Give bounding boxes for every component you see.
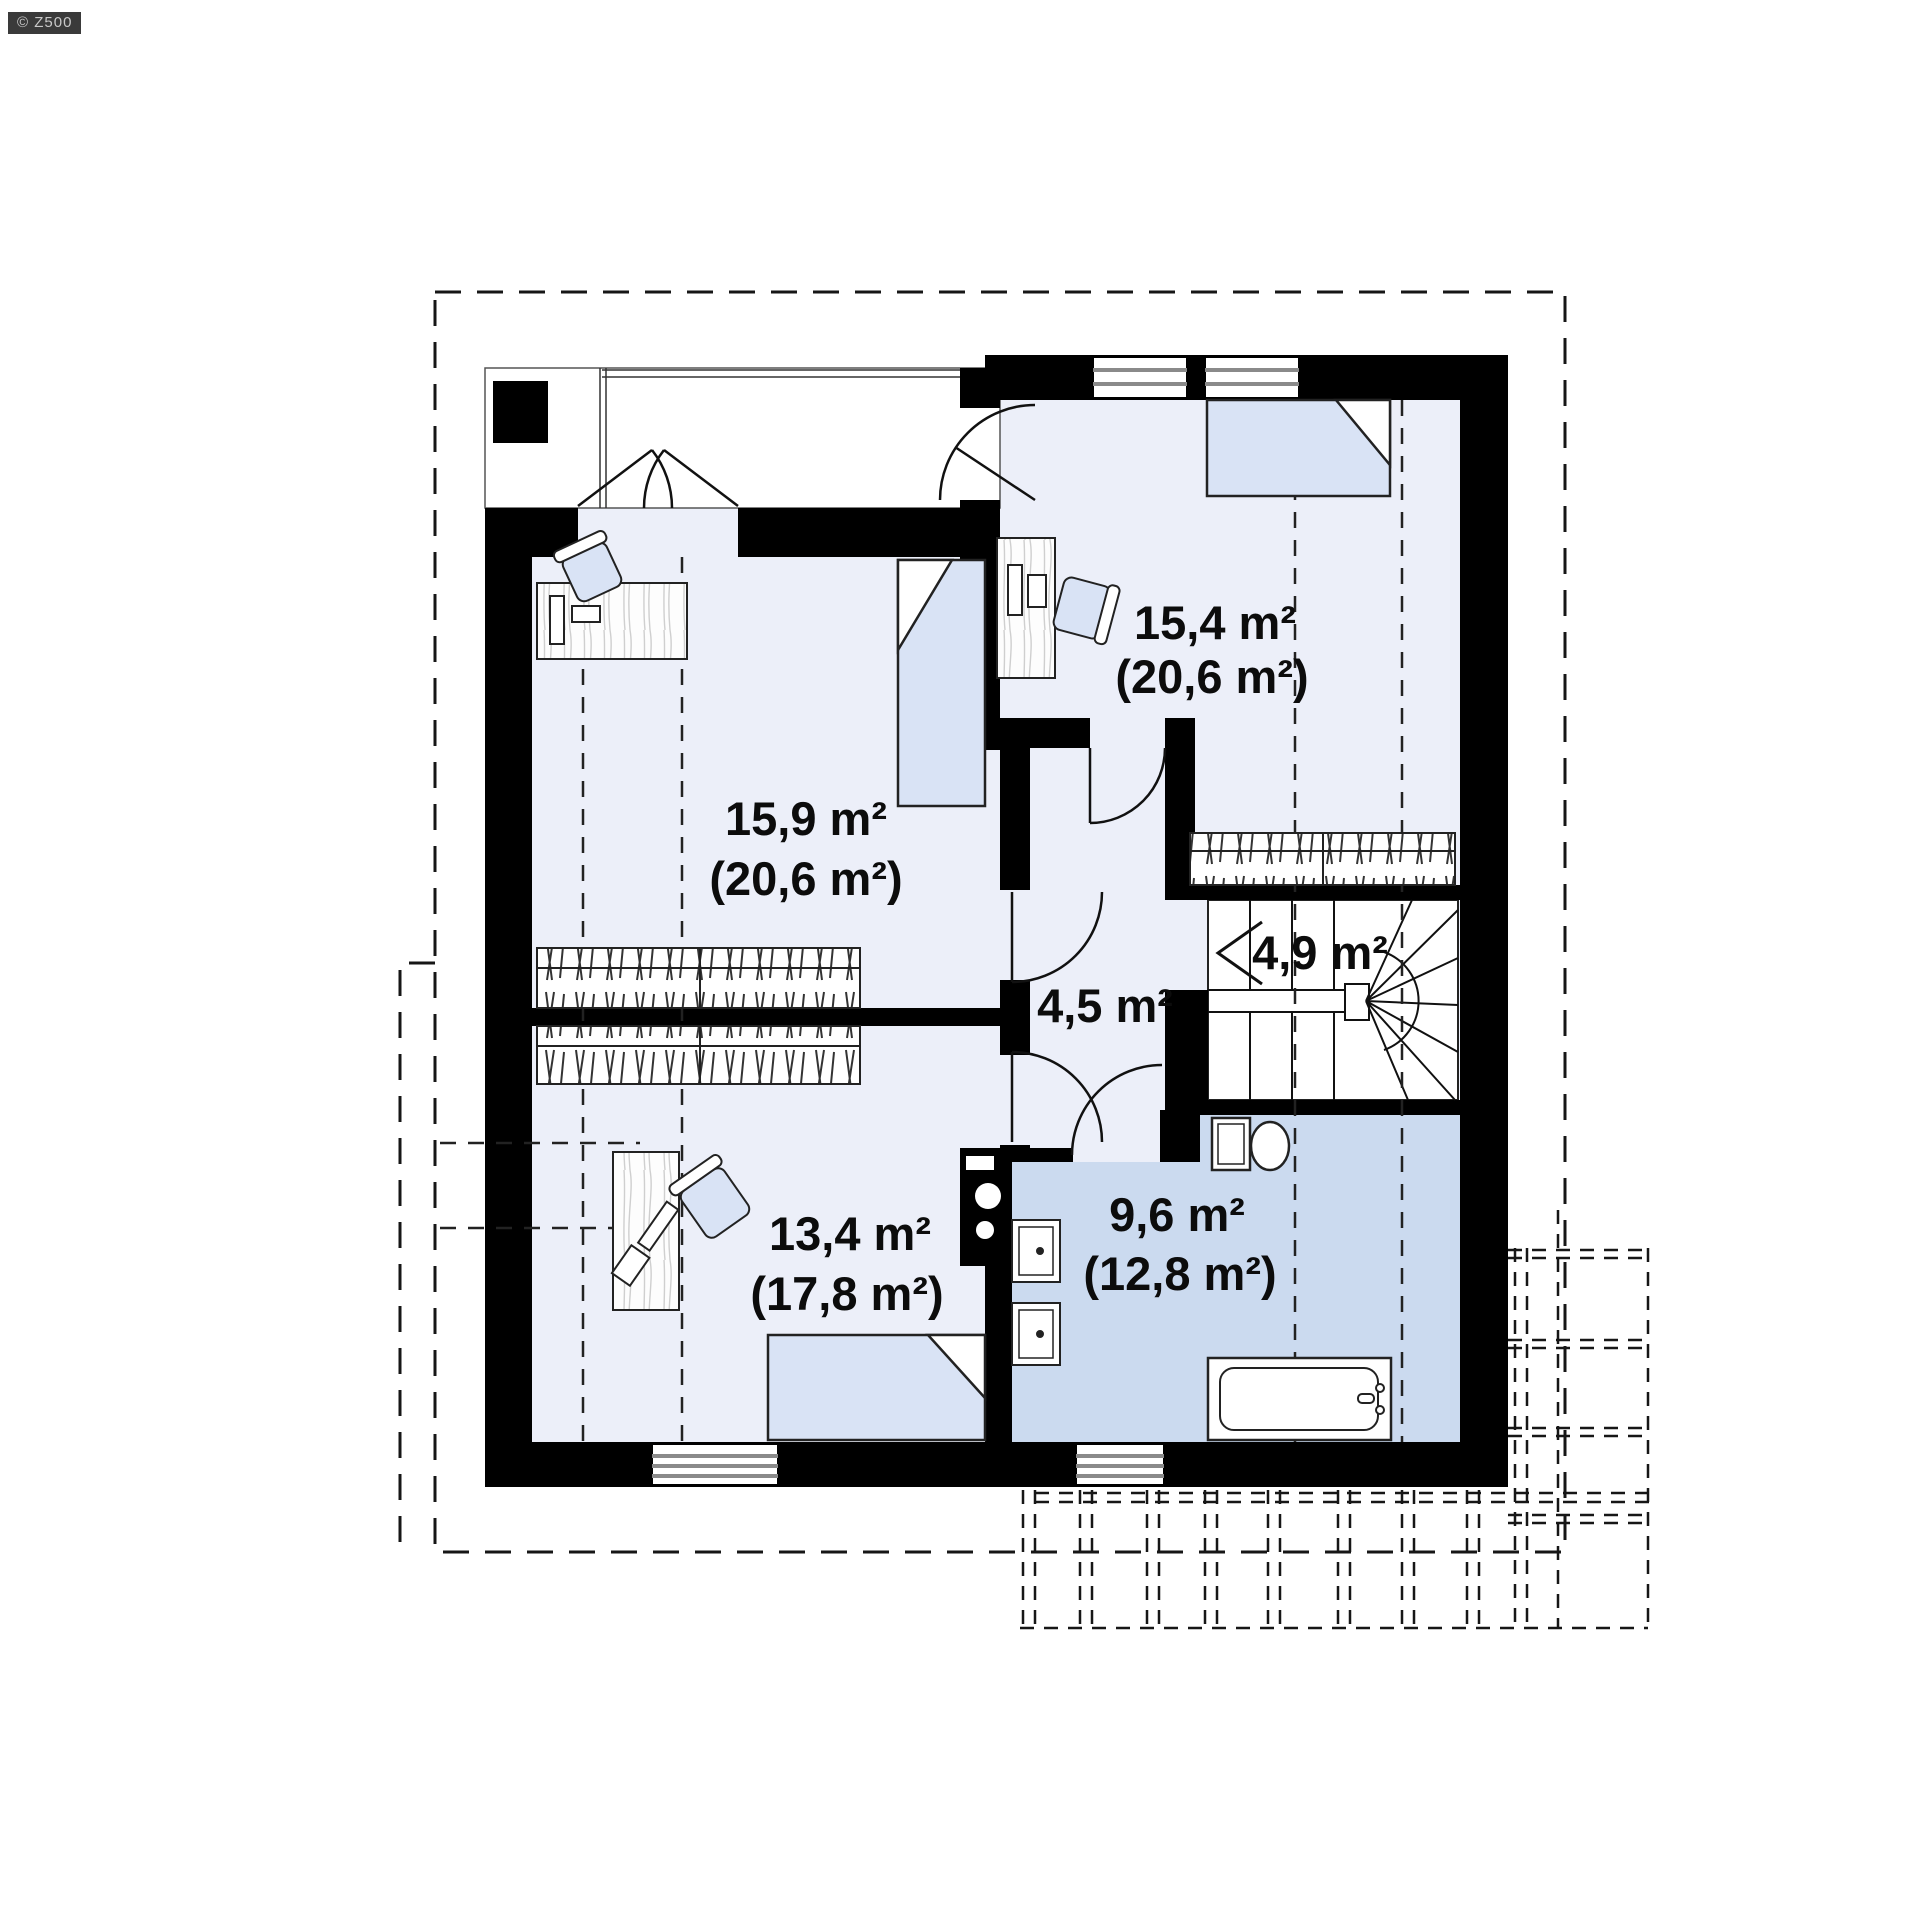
window-top-left [1093, 357, 1187, 398]
room-sublabel-bedroom-lower-left: (17,8 m²) [750, 1267, 943, 1320]
bed-icon [898, 560, 985, 806]
floor-plan-svg: 15,4 m² (20,6 m²) 15,9 m² (20,6 m²) 4,5 … [0, 0, 1920, 1928]
window-bottom-left [652, 1444, 778, 1485]
balcony [485, 368, 1000, 508]
monitor-icon [1008, 565, 1022, 615]
room-label-staircase: 4,9 m² [1252, 926, 1388, 979]
chimney [493, 381, 548, 443]
wardrobe-icon [1190, 833, 1455, 885]
room-sublabel-bathroom: (12,8 m²) [1083, 1247, 1276, 1300]
room-label-bedroom-left: 15,9 m² [725, 792, 887, 845]
washbasin-icon [1012, 1220, 1060, 1282]
bed-icon [1207, 400, 1390, 496]
window-bottom-right [1076, 1444, 1164, 1485]
room-label-bathroom: 9,6 m² [1109, 1188, 1245, 1241]
keyboard-icon [572, 606, 600, 622]
room-sublabel-bedroom-left: (20,6 m²) [709, 852, 902, 905]
room-sublabel-bedroom-upper-right: (20,6 m²) [1115, 650, 1308, 703]
bed-icon [768, 1335, 985, 1440]
washbasin-icon [1012, 1303, 1060, 1365]
floor-plan-page: © Z500 [0, 0, 1920, 1928]
pergola-bottom-dashed [1020, 1490, 1650, 1628]
toilet-icon [1212, 1118, 1289, 1170]
wardrobe-icon [537, 948, 860, 1008]
window-top-right [1205, 357, 1299, 398]
room-label-hall: 4,5 m² [1037, 979, 1173, 1032]
keyboard-icon [1028, 575, 1046, 607]
desk-icon [537, 583, 687, 659]
bathtub-icon [1208, 1358, 1391, 1440]
wardrobe-icon [537, 1026, 860, 1084]
room-label-bedroom-upper-right: 15,4 m² [1134, 596, 1296, 649]
room-label-bedroom-lower-left: 13,4 m² [769, 1207, 931, 1260]
desk-icon [612, 1152, 682, 1310]
pergola-right-dashed [1508, 1210, 1648, 1628]
desk-icon [997, 538, 1055, 678]
monitor-icon [550, 596, 564, 644]
